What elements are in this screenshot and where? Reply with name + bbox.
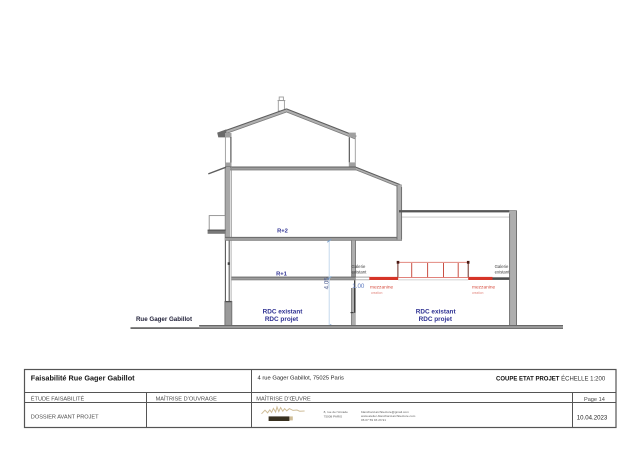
svg-text:4.05: 4.05 [324, 277, 331, 290]
svg-text:Rue Gager Gabillot: Rue Gager Gabillot [136, 316, 192, 323]
svg-text:Galerie: Galerie [495, 264, 509, 269]
svg-text:mezzanine: mezzanine [370, 284, 394, 290]
svg-text:creation: creation [472, 291, 484, 295]
svg-text:8, rue de l’Arcade: 8, rue de l’Arcade [324, 410, 349, 414]
svg-text:R+2: R+2 [277, 229, 288, 235]
svg-text:1.00: 1.00 [352, 283, 365, 290]
svg-text:DOSSIER AVANT PROJET: DOSSIER AVANT PROJET [31, 415, 99, 421]
svg-text:Faisabilité Rue Gager Gabillot: Faisabilité Rue Gager Gabillot [31, 374, 135, 383]
svg-text:RDC projet: RDC projet [265, 316, 299, 323]
svg-text:Page 14: Page 14 [584, 397, 605, 403]
svg-text:RDC projet: RDC projet [419, 316, 453, 323]
svg-text:mezzanine: mezzanine [472, 284, 496, 290]
svg-text:existant: existant [495, 270, 511, 275]
svg-text:ÉTUDE FAISABILITÉ: ÉTUDE FAISABILITÉ [31, 395, 85, 402]
svg-text:MAÎTRISE D’ŒUVRE: MAÎTRISE D’ŒUVRE [256, 395, 311, 402]
svg-text:MAÎTRISE D’OUVRAGE: MAÎTRISE D’OUVRAGE [156, 395, 217, 402]
svg-text:RDC existant: RDC existant [416, 308, 457, 315]
svg-text:4 rue Gager Gabillot, 75025 Pa: 4 rue Gager Gabillot, 75025 Paris [258, 376, 344, 382]
svg-text:Galerie: Galerie [352, 264, 366, 269]
svg-text:06 07 59 93 23 91: 06 07 59 93 23 91 [361, 418, 386, 422]
svg-text:creation: creation [371, 291, 383, 295]
svg-text:10.04.2023: 10.04.2023 [577, 415, 608, 422]
svg-text:COUPE ETAT PROJET ÉCHELLE 1:20: COUPE ETAT PROJET ÉCHELLE 1:200 [496, 376, 606, 383]
svg-text:existant: existant [352, 270, 368, 275]
svg-text:75008 PARIS: 75008 PARIS [324, 414, 343, 418]
svg-text:R+1: R+1 [276, 272, 288, 278]
svg-text:RDC existant: RDC existant [263, 308, 304, 315]
